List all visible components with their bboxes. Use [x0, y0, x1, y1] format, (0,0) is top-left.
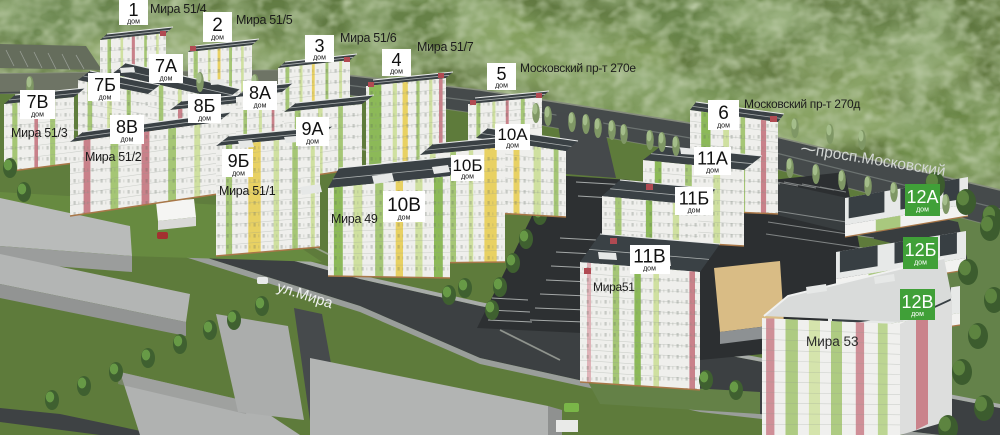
- svg-text:11Б: 11Б: [679, 189, 710, 209]
- svg-text:4: 4: [391, 50, 401, 70]
- svg-text:Московский пр-т 270е: Московский пр-т 270е: [520, 61, 636, 75]
- svg-text:10В: 10В: [387, 195, 421, 216]
- svg-text:дом: дом: [717, 123, 730, 130]
- svg-text:дом: дом: [390, 69, 403, 76]
- svg-text:11В: 11В: [633, 247, 665, 268]
- svg-text:Мира 51/5: Мира 51/5: [236, 13, 293, 27]
- svg-text:Мира51: Мира51: [593, 280, 635, 294]
- svg-text:5: 5: [496, 64, 506, 84]
- svg-text:дом: дом: [306, 139, 319, 146]
- svg-text:1: 1: [128, 0, 138, 20]
- svg-text:7А: 7А: [155, 56, 177, 76]
- svg-text:10А: 10А: [497, 125, 528, 144]
- svg-text:Мира 49: Мира 49: [331, 212, 378, 226]
- svg-text:Мира 53: Мира 53: [806, 334, 859, 349]
- svg-text:8А: 8А: [249, 83, 271, 103]
- svg-text:12А: 12А: [906, 187, 938, 207]
- svg-text:дом: дом: [211, 35, 224, 42]
- svg-text:дом: дом: [506, 143, 519, 150]
- svg-text:дом: дом: [127, 19, 140, 26]
- svg-text:дом: дом: [121, 137, 134, 144]
- svg-text:дом: дом: [916, 207, 929, 214]
- svg-text:дом: дом: [643, 266, 656, 273]
- svg-text:дом: дом: [254, 103, 267, 110]
- svg-text:7Б: 7Б: [94, 75, 116, 95]
- svg-text:дом: дом: [461, 174, 474, 181]
- svg-text:Мира 51/3: Мира 51/3: [11, 126, 68, 140]
- svg-text:11А: 11А: [697, 149, 728, 169]
- svg-text:6: 6: [718, 103, 729, 124]
- svg-text:9А: 9А: [301, 119, 323, 139]
- svg-text:12В: 12В: [901, 292, 933, 312]
- svg-text:2: 2: [212, 15, 223, 36]
- svg-text:дом: дом: [495, 83, 508, 90]
- svg-text:10Б: 10Б: [452, 156, 482, 175]
- svg-text:дом: дом: [911, 311, 924, 318]
- svg-text:дом: дом: [313, 55, 326, 62]
- svg-text:3: 3: [314, 36, 324, 56]
- svg-text:дом: дом: [198, 116, 211, 123]
- svg-text:Мира 51/4: Мира 51/4: [150, 2, 207, 16]
- svg-text:дом: дом: [688, 208, 701, 215]
- svg-text:12Б: 12Б: [905, 240, 937, 260]
- svg-text:Мира 51/2: Мира 51/2: [85, 150, 142, 164]
- svg-text:Московский пр-т 270д: Московский пр-т 270д: [744, 97, 860, 111]
- svg-text:дом: дом: [398, 215, 411, 222]
- svg-text:дом: дом: [914, 260, 927, 267]
- svg-text:Мира 51/7: Мира 51/7: [417, 40, 474, 54]
- svg-text:дом: дом: [99, 95, 112, 102]
- svg-text:Мира 51/1: Мира 51/1: [219, 184, 276, 198]
- svg-text:дом: дом: [706, 168, 719, 175]
- svg-text:дом: дом: [232, 171, 245, 178]
- svg-text:Мира 51/6: Мира 51/6: [340, 31, 397, 45]
- svg-text:дом: дом: [31, 112, 44, 119]
- svg-text:9Б: 9Б: [228, 151, 250, 171]
- svg-text:8В: 8В: [116, 117, 138, 137]
- svg-text:дом: дом: [160, 76, 173, 83]
- svg-text:8Б: 8Б: [194, 96, 216, 116]
- svg-text:7В: 7В: [26, 92, 48, 112]
